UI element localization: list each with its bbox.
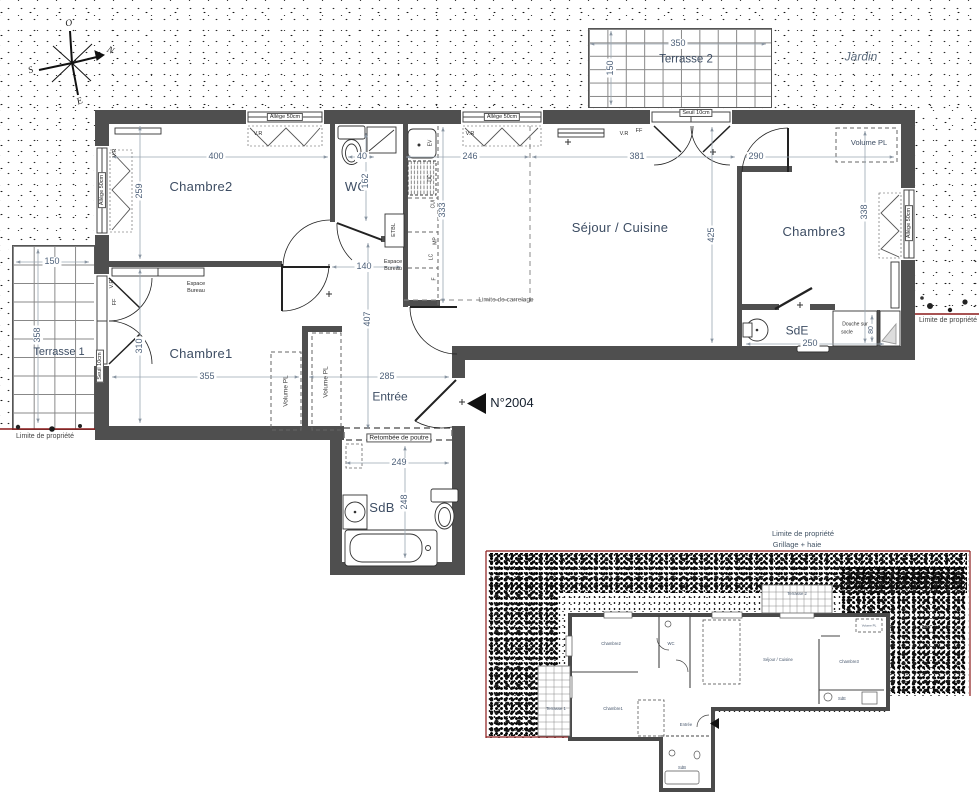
vr-label-sejour: V.R <box>466 131 475 137</box>
sdb-width-dim: 249 <box>389 458 408 468</box>
site-chambre2-label: Chambre2 <box>601 642 621 647</box>
kitchen-fridge-label: DC <box>428 174 434 181</box>
site-terrace1-label: Terrasse 1 <box>546 707 566 712</box>
chambre2-height-dim: 259 <box>135 181 145 200</box>
carrelage-limit-label: Limite de carrelage <box>478 296 533 303</box>
chambre3-height-dim: 338 <box>860 202 870 221</box>
property-lines <box>0 296 979 432</box>
volume-pl1-label: Volume PL <box>282 373 289 408</box>
beam-label: Retombée de poutre <box>366 433 431 442</box>
doors <box>109 126 812 428</box>
site-chambre1-label: Chambre1 <box>603 707 623 712</box>
site-entree-label: Entrée <box>680 723 692 728</box>
terrace1-height-dim: 358 <box>33 325 43 344</box>
chambre3-width-dim: 290 <box>746 152 765 162</box>
sejour-depth-left-dim: 333 <box>438 200 448 219</box>
entree-label: Entrée <box>372 390 407 403</box>
allege-label-chambre3-right: Allège 50cm <box>905 205 913 241</box>
shower-label-line1: Douche sur <box>842 322 868 328</box>
terrace2-height-dim: 150 <box>606 58 616 77</box>
terrace1-seuil-label: Seuil 10cm <box>96 349 104 382</box>
espace-bureau1-line2: Bureau <box>187 288 205 294</box>
espace-bureau2-line1: Espace <box>384 259 402 265</box>
wc-height-dim: 162 <box>361 171 371 190</box>
site-chambre3-label: Chambre3 <box>839 660 859 665</box>
ff-label-chambre1-left: FF <box>112 299 118 306</box>
sejour-dim-right: 381 <box>627 152 646 162</box>
property-limit-label-left: Limite de propriété <box>16 433 74 441</box>
chambre2-width-dim: 400 <box>206 152 225 162</box>
floorplan-page: { "compass": {"west":"O","north":"N","so… <box>0 0 980 800</box>
site-volume-pl-label: Volume PL <box>862 624 877 627</box>
site-garden-dim: 400 <box>922 625 930 630</box>
terrace2-label: Terrasse 2 <box>659 54 713 67</box>
chambre1-label: Chambre1 <box>169 347 232 361</box>
entree-width-dim: 285 <box>377 372 396 382</box>
site-wc-label: WC <box>667 642 674 647</box>
sde-label: SdE <box>786 324 809 337</box>
terrace1-width-dim: 150 <box>42 257 61 267</box>
site-limit-label: Limite de propriété <box>772 530 834 538</box>
vr-label-doors: V.R <box>620 131 629 137</box>
kitchen-sink-label: EV <box>428 140 434 147</box>
jardin-label: Jardin <box>845 50 878 63</box>
hall-width-dim: 140 <box>354 262 373 272</box>
kitchen-lc-label: LC <box>429 254 435 260</box>
volume-pl-chambre3-label: Volume PL <box>851 139 887 147</box>
kitchen-f-label: F <box>432 277 438 280</box>
vr-label-chambre2-left: V.R <box>112 149 118 158</box>
vr-label-chambre2-top: V.R <box>254 131 263 137</box>
shower-width-dim: 80 <box>868 324 876 336</box>
site-sejour-label: Séjour / Cuisine <box>763 658 793 663</box>
site-terrace2-label: Terrasse 2 <box>787 592 807 597</box>
chambre1-height-dim: 310 <box>135 336 145 355</box>
terrace1-label: Terrasse 1 <box>33 346 84 358</box>
sejour-label: Séjour / Cuisine <box>572 221 669 235</box>
terrace2-width-dim: 350 <box>668 39 687 49</box>
sejour-depth-right-dim: 425 <box>707 225 717 244</box>
entree-height-dim: 407 <box>363 309 373 328</box>
chambre3-label: Chambre3 <box>782 225 845 239</box>
espace-bureau2-line2: Bureau <box>384 266 402 272</box>
wc-width-dim: 40 <box>355 152 369 162</box>
volume-pl2-label: Volume PL <box>322 364 329 399</box>
chambre2-label: Chambre2 <box>169 180 232 194</box>
kitchen-mp-label: MP <box>433 237 439 245</box>
chambre1-width-dim: 355 <box>197 372 216 382</box>
kitchen-etbl-label: ETBL <box>391 223 397 237</box>
ff-label-doors: FF <box>636 128 643 134</box>
site-sdb-label: SdB <box>678 766 686 771</box>
entrance-arrow-icon <box>467 393 486 414</box>
espace-bureau1-line1: Espace <box>187 281 205 287</box>
allege-label-chambre2-top: Allège 50cm <box>267 113 303 121</box>
vr-label-chambre1-left: V.R <box>109 280 115 289</box>
property-limit-label-right: Limite de propriété <box>919 317 977 325</box>
sejour-dim-left: 246 <box>460 152 479 162</box>
compass-icon <box>39 31 104 95</box>
site-sde-label: SdE <box>838 697 846 702</box>
unit-number-label: N°2004 <box>490 396 534 410</box>
allege-label-chambre2-left: Allège 50cm <box>98 172 106 208</box>
sde-width-dim: 250 <box>800 339 819 349</box>
site-fence-label: Grillage + haie <box>773 541 822 549</box>
allege-label-sejour: Allège 50cm <box>484 113 520 121</box>
shower-label-line2: socle <box>841 330 853 336</box>
sdb-label: SdB <box>369 501 394 515</box>
terrace2-seuil-label: Seuil 10cm <box>679 109 712 117</box>
site-plan-drawing <box>486 551 970 790</box>
kitchen-cui-label: CUI <box>431 200 437 209</box>
sdb-height-dim: 248 <box>400 492 410 511</box>
